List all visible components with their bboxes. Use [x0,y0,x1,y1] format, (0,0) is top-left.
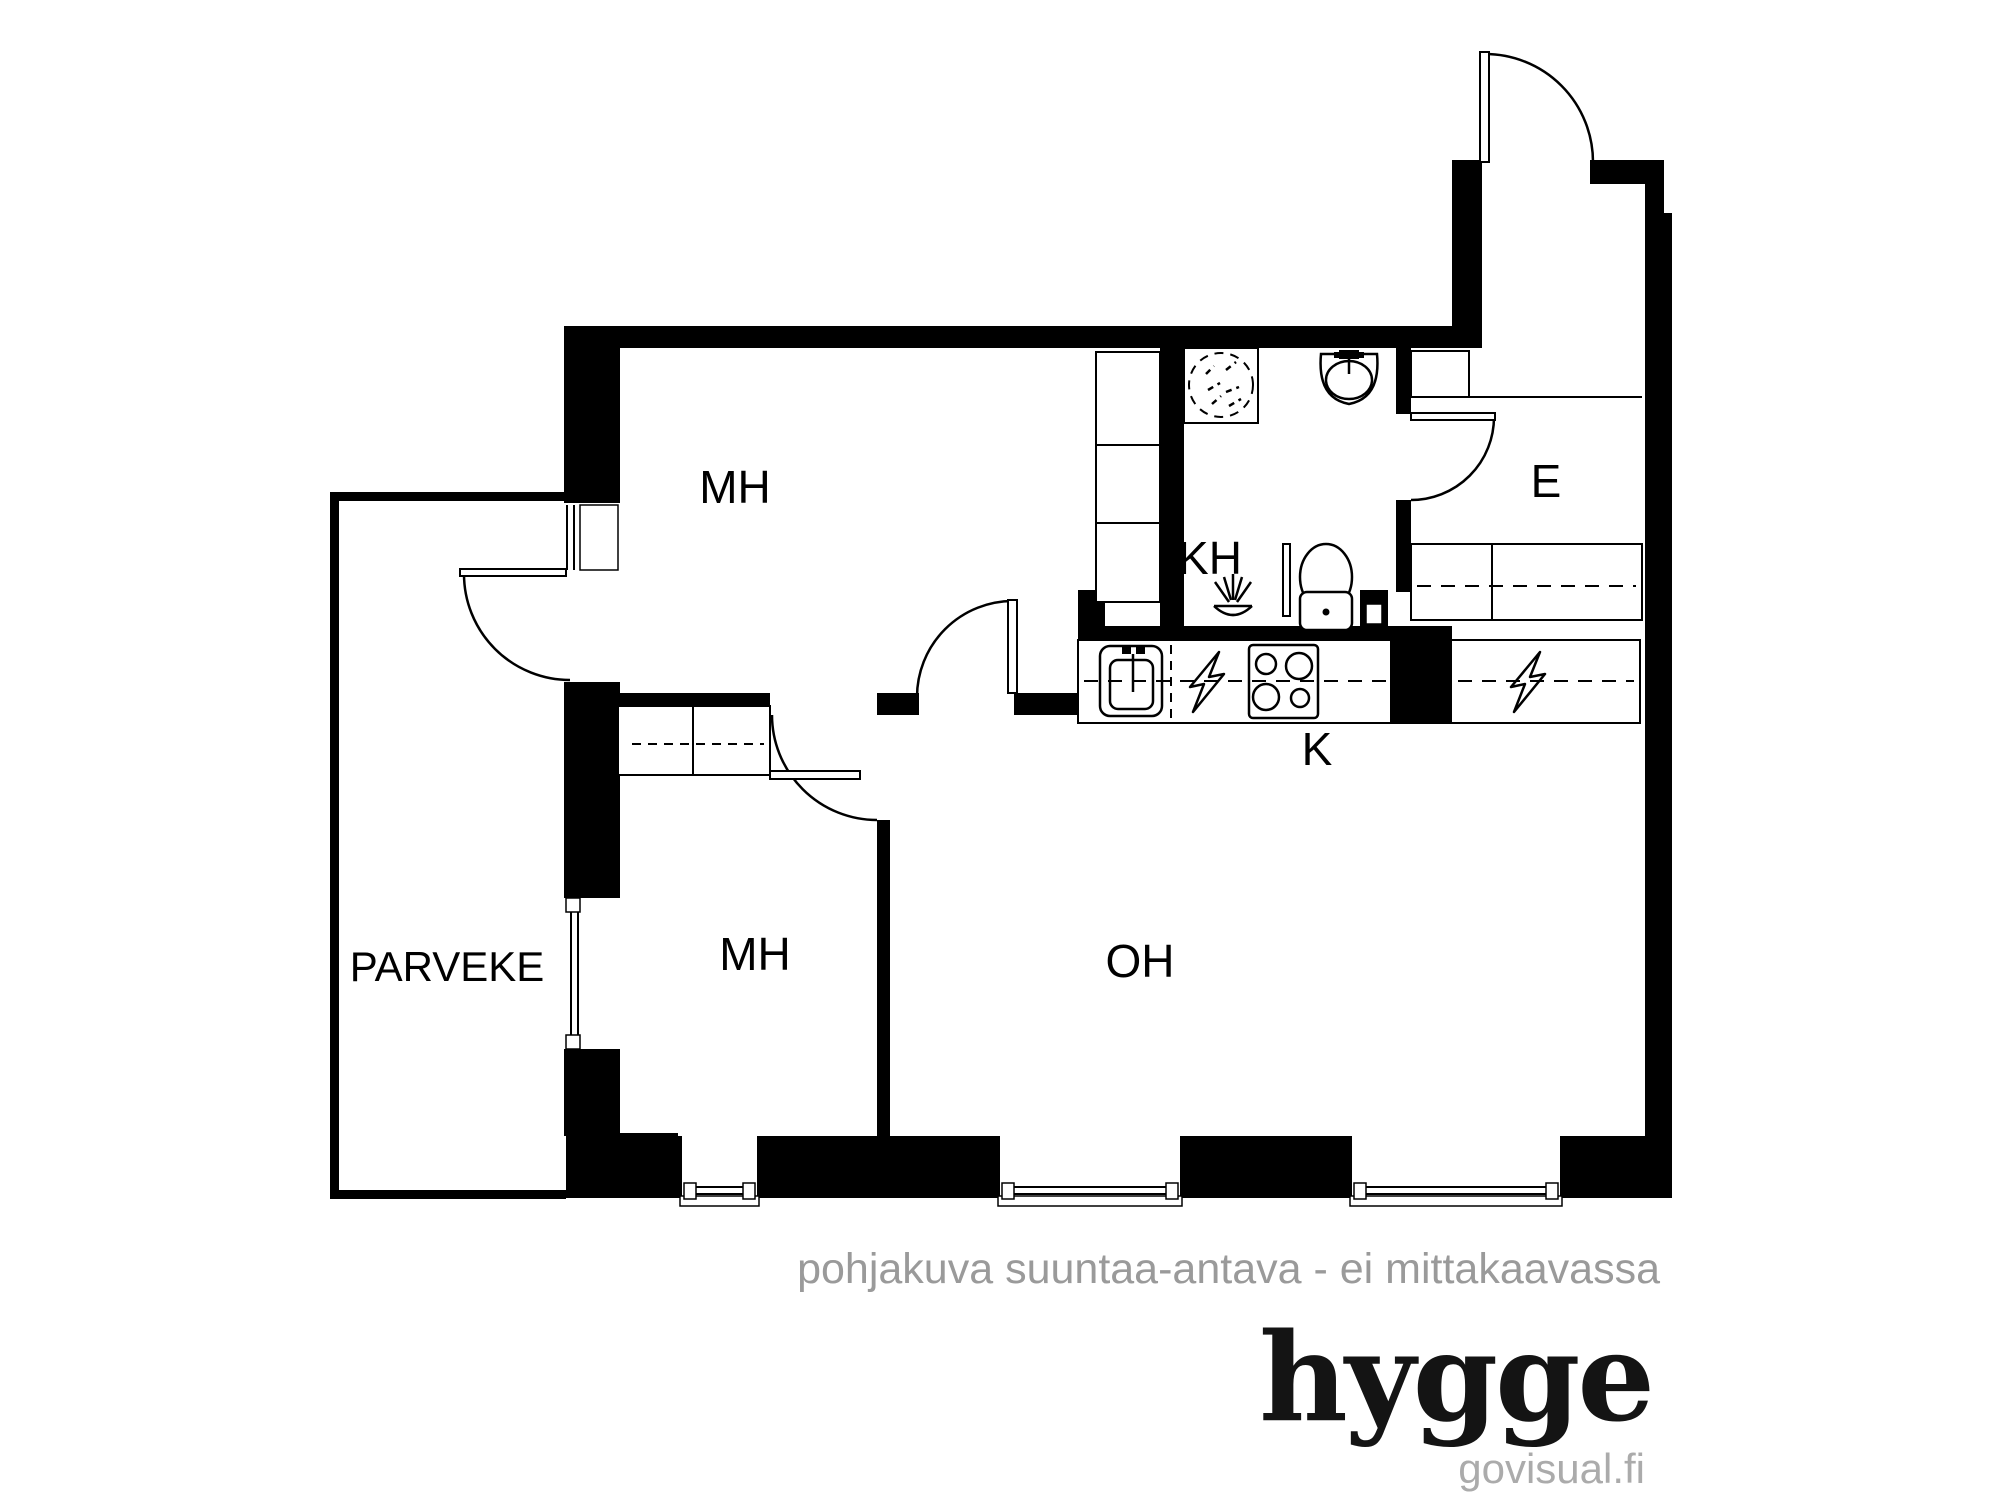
window-balcony-upper [564,503,620,572]
balcony-door [460,569,570,680]
door-swing-arc [917,601,1013,697]
entrance-door [1480,52,1593,162]
window-south-mh [680,1136,759,1206]
room-label-parveke: PARVEKE [350,943,545,990]
bedroom-top-door [917,600,1017,697]
door-leaf [1008,600,1017,693]
room-label-kh: KH [1178,532,1242,584]
bathroom-sink-icon [1321,350,1378,404]
floor-plan-page: MH KH E K OH MH PARVEKE pohjakuva suunta… [0,0,2000,1500]
closets-lower-mh [618,706,770,775]
balcony-walls [330,492,566,1199]
washing-machine-icon [1184,348,1258,423]
door-leaf [1480,52,1489,162]
disclaimer-text: pohjakuva suuntaa-antava - ei mittakaava… [797,1245,1660,1293]
door-leaf [770,771,860,779]
window-balcony-lower [564,898,620,1049]
website-link: govisual.fi [1458,1445,1645,1492]
hallway-cabinet [1411,351,1642,397]
floor-plan-drawing: MH KH E K OH MH PARVEKE pohjakuva suunta… [0,0,2000,1500]
bathroom-door [1411,413,1495,500]
closets-upper-mh [1096,352,1160,602]
door-swing-arc [772,715,877,820]
door-swing-arc [464,574,570,680]
door-swing-arc [1485,54,1593,162]
window-south-oh-left [998,1136,1182,1206]
door-leaf [460,569,566,576]
room-label-oh: OH [1106,935,1175,987]
window-south-oh-right [1350,1136,1562,1206]
room-label-mh-bottom: MH [719,928,791,980]
door-leaf [1411,413,1495,420]
room-label-k: K [1302,723,1333,775]
door-swing-arc [1411,417,1494,500]
bedroom-bottom-door [770,715,877,820]
room-label-e: E [1531,455,1562,507]
hallway-wardrobe [1411,544,1642,620]
toilet-partition [1283,544,1290,616]
toilet-icon [1300,544,1352,630]
room-label-mh-top: MH [699,461,771,513]
brand-logo: hygge [1259,1305,1652,1449]
